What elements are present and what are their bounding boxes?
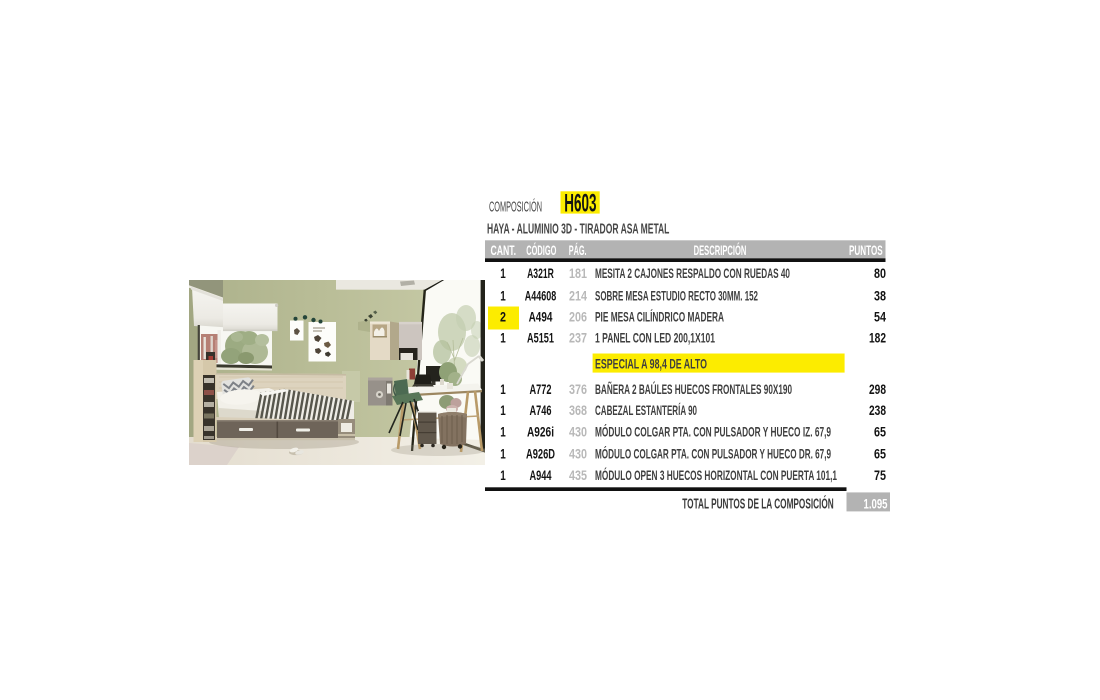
svg-text:DESCRIPCIÓN: DESCRIPCIÓN: [694, 241, 747, 258]
svg-text:H603: H603: [564, 190, 596, 218]
svg-text:PUNTOS: PUNTOS: [849, 242, 883, 258]
svg-text:PIE MESA CILÍNDRICO MADERA: PIE MESA CILÍNDRICO MADERA: [595, 309, 724, 325]
svg-text:A772: A772: [530, 381, 552, 397]
svg-text:181: 181: [569, 265, 587, 281]
svg-text:1 PANEL CON LED 200,1X101: 1 PANEL CON LED 200,1X101: [595, 330, 715, 346]
svg-text:1.095: 1.095: [864, 496, 888, 512]
svg-text:A926i: A926i: [527, 424, 554, 440]
svg-text:1: 1: [500, 381, 506, 397]
svg-text:PÁG.: PÁG.: [569, 242, 587, 258]
svg-text:A321R: A321R: [527, 265, 554, 281]
svg-text:38: 38: [874, 287, 886, 303]
svg-text:1: 1: [500, 287, 506, 303]
svg-text:CÓDIGO: CÓDIGO: [526, 241, 556, 258]
svg-text:1: 1: [500, 467, 506, 483]
svg-text:CANT.: CANT.: [491, 242, 517, 258]
svg-text:1: 1: [500, 330, 506, 346]
svg-text:206: 206: [569, 309, 587, 325]
svg-text:A494: A494: [529, 309, 553, 325]
svg-text:368: 368: [569, 402, 587, 418]
svg-text:MESITA 2 CAJONES RESPALDO CON: MESITA 2 CAJONES RESPALDO CON RUEDAS 40: [595, 265, 790, 281]
svg-text:214: 214: [569, 287, 587, 303]
svg-text:SOBRE MESA ESTUDIO RECTO 30MM.: SOBRE MESA ESTUDIO RECTO 30MM. 152: [595, 287, 758, 303]
svg-text:ESPECIAL A 98,4 DE ALTO: ESPECIAL A 98,4 DE ALTO: [595, 356, 707, 372]
svg-text:65: 65: [874, 445, 886, 461]
svg-text:A944: A944: [530, 467, 552, 483]
svg-text:1: 1: [500, 424, 506, 440]
svg-text:80: 80: [874, 265, 886, 281]
svg-text:1: 1: [500, 402, 506, 418]
svg-text:54: 54: [874, 309, 886, 325]
svg-text:BAÑERA 2 BAÚLES HUECOS FRONTAL: BAÑERA 2 BAÚLES HUECOS FRONTALES 90X190: [595, 380, 792, 397]
svg-text:HAYA - ALUMINIO 3D - TIRADOR A: HAYA - ALUMINIO 3D - TIRADOR ASA METAL: [487, 221, 669, 238]
svg-text:MÓDULO OPEN 3 HUECOS HORIZONTA: MÓDULO OPEN 3 HUECOS HORIZONTAL CON PUER…: [595, 466, 837, 483]
svg-text:238: 238: [869, 402, 886, 418]
svg-text:75: 75: [874, 467, 886, 483]
svg-text:376: 376: [569, 381, 587, 397]
svg-text:A5151: A5151: [527, 330, 554, 346]
svg-text:MÓDULO COLGAR PTA. CON PULSADO: MÓDULO COLGAR PTA. CON PULSADOR Y HUECO …: [595, 423, 831, 440]
svg-text:430: 430: [569, 445, 587, 461]
svg-text:1: 1: [500, 265, 506, 281]
svg-text:CABEZAL ESTANTERÍA 90: CABEZAL ESTANTERÍA 90: [595, 402, 697, 418]
svg-text:298: 298: [869, 381, 886, 397]
svg-text:2: 2: [500, 309, 506, 325]
svg-text:237: 237: [569, 330, 587, 346]
svg-text:A746: A746: [530, 402, 552, 418]
svg-text:A926D: A926D: [526, 445, 555, 461]
svg-text:430: 430: [569, 424, 587, 440]
svg-text:A44608: A44608: [525, 287, 557, 303]
svg-text:TOTAL PUNTOS DE LA COMPOSICIÓN: TOTAL PUNTOS DE LA COMPOSICIÓN: [682, 495, 833, 513]
svg-text:182: 182: [869, 330, 886, 346]
svg-text:MÓDULO COLGAR PTA. CON PULSADO: MÓDULO COLGAR PTA. CON PULSADOR Y HUECO …: [595, 444, 831, 461]
svg-text:COMPOSICIÓN: COMPOSICIÓN: [489, 199, 542, 216]
svg-text:1: 1: [500, 445, 506, 461]
svg-text:435: 435: [569, 467, 587, 483]
svg-text:65: 65: [874, 424, 886, 440]
